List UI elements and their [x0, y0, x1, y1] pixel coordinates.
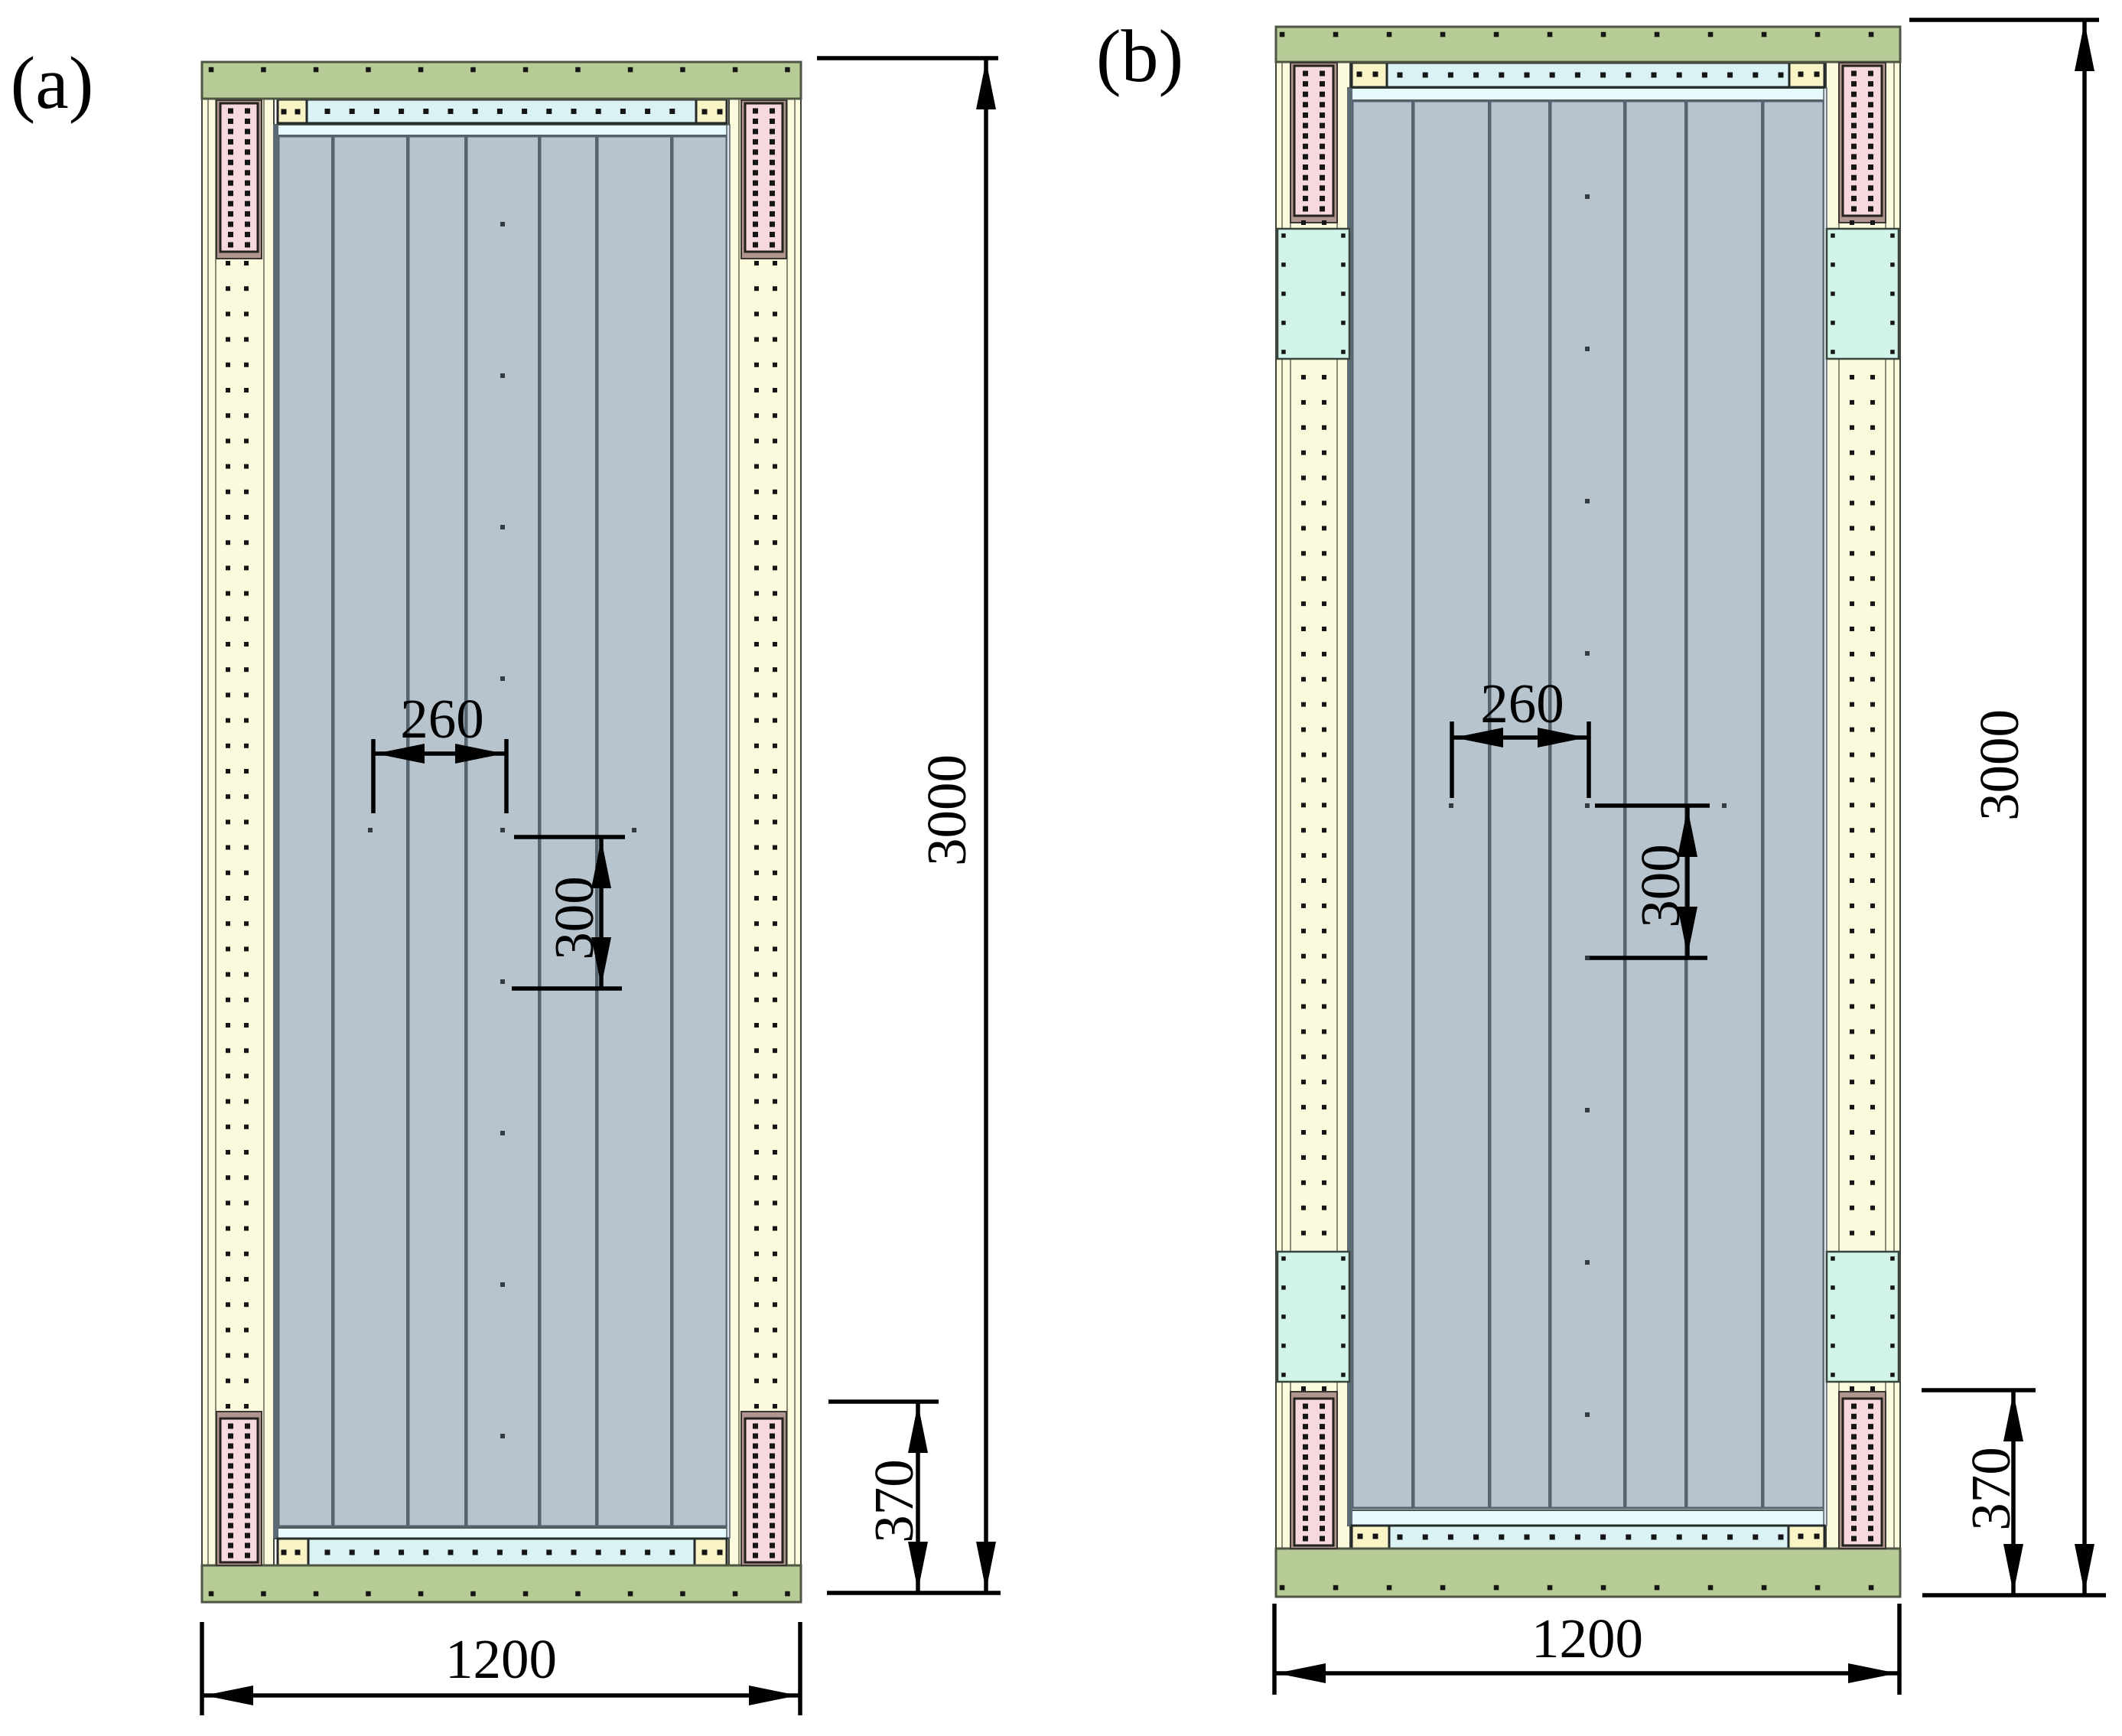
svg-text:(a): (a) — [11, 42, 94, 125]
svg-text:3000: 3000 — [1968, 709, 2030, 821]
svg-text:1200: 1200 — [1531, 1607, 1643, 1669]
svg-text:(b): (b) — [1096, 15, 1183, 98]
svg-text:370: 370 — [863, 1459, 925, 1543]
svg-text:370: 370 — [1960, 1447, 2022, 1531]
svg-text:260: 260 — [1480, 673, 1564, 734]
svg-text:3000: 3000 — [916, 754, 978, 866]
svg-text:300: 300 — [543, 876, 605, 960]
svg-text:260: 260 — [400, 688, 484, 750]
svg-text:300: 300 — [1629, 844, 1691, 928]
svg-text:1200: 1200 — [445, 1628, 557, 1690]
